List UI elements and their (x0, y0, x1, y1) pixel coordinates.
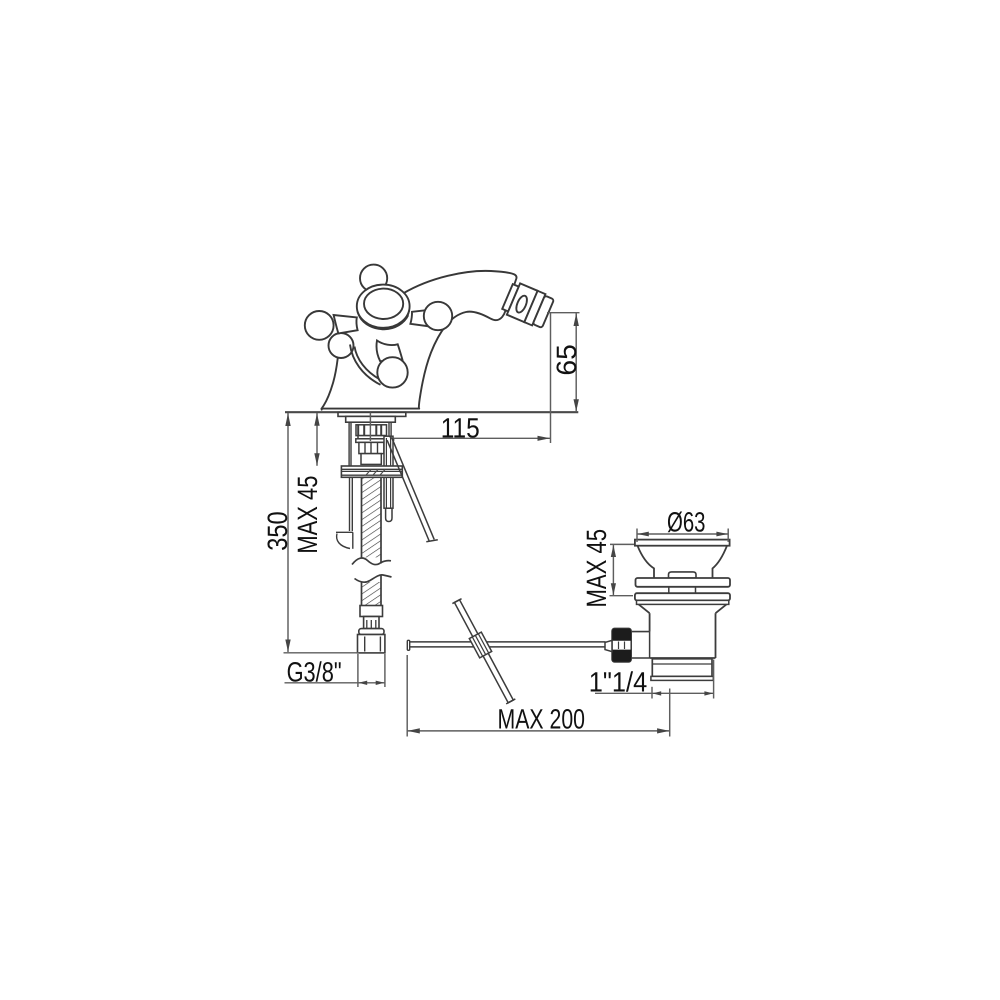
svg-text:Ø63: Ø63 (667, 507, 706, 538)
svg-text:MAX 45: MAX 45 (292, 476, 323, 554)
svg-text:MAX 45: MAX 45 (581, 529, 612, 608)
svg-text:MAX 200: MAX 200 (498, 704, 586, 735)
svg-text:115: 115 (441, 413, 480, 444)
svg-text:65: 65 (551, 344, 582, 376)
svg-text:1"1/4: 1"1/4 (589, 667, 647, 698)
svg-text:350: 350 (262, 511, 293, 551)
svg-text:G3/8": G3/8" (287, 656, 342, 687)
